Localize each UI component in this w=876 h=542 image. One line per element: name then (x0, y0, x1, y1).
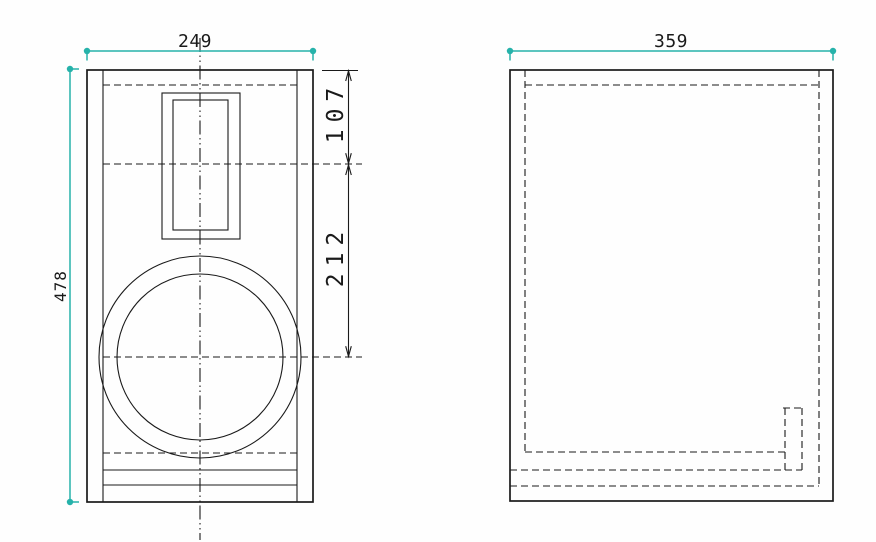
dim-side-depth: 359 (507, 31, 836, 61)
dim-tweeter-offset: 107 (322, 71, 358, 164)
dim-label-driver-spacing: 212 (323, 225, 349, 288)
drawing-canvas: 249 478 107 212 359 (0, 0, 876, 542)
side-view (510, 70, 833, 501)
front-view (87, 38, 362, 540)
dim-label-front-width: 249 (178, 31, 212, 52)
dimension-endpoint-dot-icon (507, 48, 513, 54)
dimension-endpoint-dot-icon (67, 499, 73, 505)
speaker-enclosure-drawing: 249 478 107 212 359 (0, 0, 876, 542)
side-duct-hidden-rect (783, 408, 802, 470)
dim-driver-spacing: 212 (323, 165, 351, 357)
dimension-endpoint-dot-icon (84, 48, 90, 54)
dimension-endpoint-dot-icon (830, 48, 836, 54)
dim-front-height: 478 (51, 66, 79, 505)
dim-label-tweeter-offset: 107 (323, 81, 349, 144)
dim-label-side-depth: 359 (654, 31, 688, 52)
dim-label-front-height: 478 (51, 270, 70, 302)
dimension-endpoint-dot-icon (67, 66, 73, 72)
dimension-endpoint-dot-icon (310, 48, 316, 54)
